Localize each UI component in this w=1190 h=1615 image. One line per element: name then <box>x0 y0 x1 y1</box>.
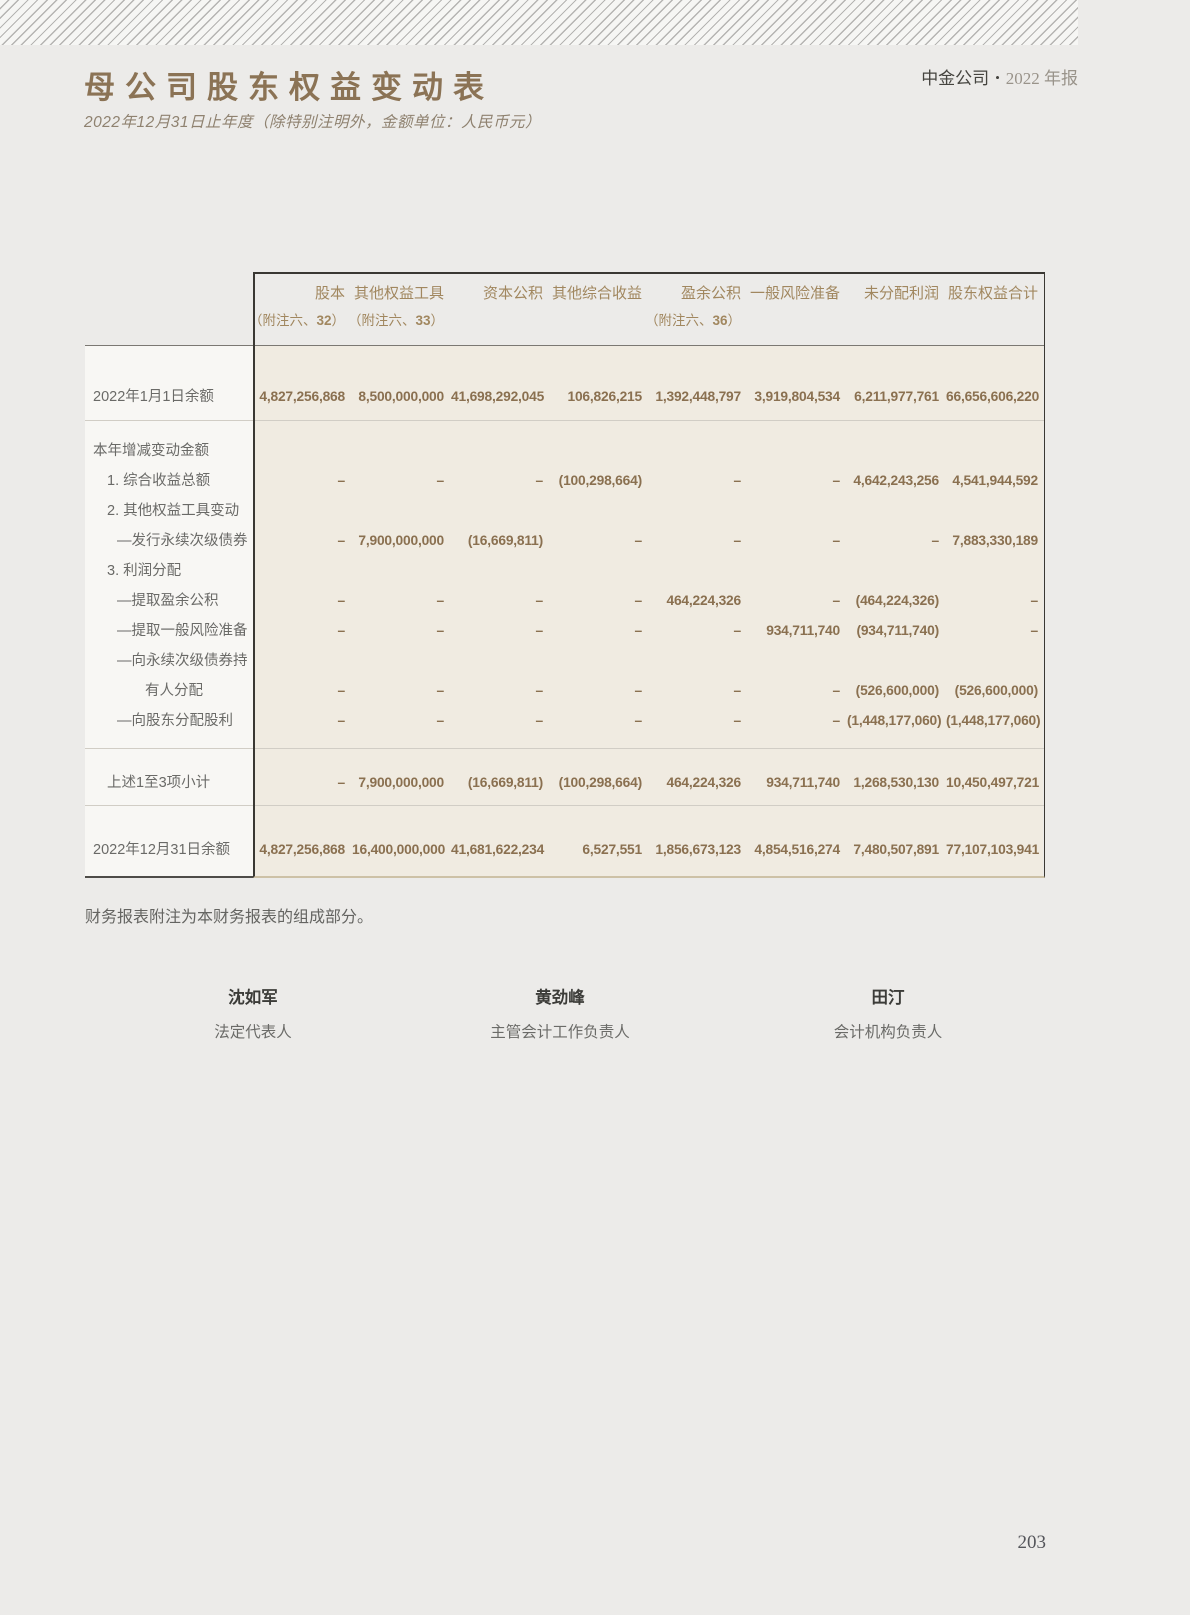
signatory-name: 田汀 <box>834 984 943 1008</box>
signatory-name: 沈如军 <box>214 984 292 1008</box>
column-header: 未分配利润 <box>847 285 946 345</box>
brand-name: 中金公司 <box>921 69 989 88</box>
cell: – <box>550 676 649 706</box>
cell: – <box>946 586 1045 616</box>
cell: 7,480,507,891 <box>847 835 946 865</box>
cell: – <box>451 586 550 616</box>
cell: 106,826,215 <box>550 382 649 412</box>
row-label: 上述1至3项小计 <box>85 768 253 798</box>
table-row: —提取一般风险准备 – – – – – 934,711,740 (934,711… <box>85 616 1045 646</box>
row-label: 2022年1月1日余额 <box>85 382 253 412</box>
cell: 464,224,326 <box>649 768 748 798</box>
cell: – <box>253 768 352 798</box>
report-year: 2022 年报 <box>1006 69 1078 88</box>
cell: 464,224,326 <box>649 586 748 616</box>
table-row: 本年增减变动金额 <box>85 436 1045 466</box>
column-header: 盈余公积 （附注六、36） <box>649 285 748 345</box>
financial-statement-note: 财务报表附注为本财务报表的组成部分。 <box>85 903 373 927</box>
cell: – <box>451 706 550 736</box>
cell: – <box>253 616 352 646</box>
cell: – <box>352 616 451 646</box>
cell: (16,669,811) <box>451 768 550 798</box>
cell: 4,541,944,592 <box>946 466 1045 496</box>
cell: – <box>253 526 352 556</box>
table-row-subtotal: 上述1至3项小计 – 7,900,000,000 (16,669,811) (1… <box>85 768 1045 798</box>
cell: 4,642,243,256 <box>847 466 946 496</box>
cell: 16,400,000,000 <box>352 835 451 865</box>
cell: 934,711,740 <box>748 768 847 798</box>
cell: – <box>649 706 748 736</box>
cell: 77,107,103,941 <box>946 835 1045 865</box>
cell: 1,856,673,123 <box>649 835 748 865</box>
cell: – <box>649 676 748 706</box>
table-row: 3. 利润分配 <box>85 556 1045 586</box>
cell: – <box>550 586 649 616</box>
cell: 8,500,000,000 <box>352 382 451 412</box>
table-row: 有人分配 – – – – – – (526,600,000) (526,600,… <box>85 676 1045 706</box>
cell: – <box>253 586 352 616</box>
cell: – <box>946 616 1045 646</box>
row-label: 有人分配 <box>85 676 253 706</box>
table-row: —提取盈余公积 – – – – 464,224,326 – (464,224,3… <box>85 586 1045 616</box>
table-row-opening-balance: 2022年1月1日余额 4,827,256,868 8,500,000,000 … <box>85 382 1045 412</box>
signatory-role: 会计机构负责人 <box>834 1020 943 1042</box>
page-title: 母公司股东权益变动表 <box>84 62 494 107</box>
bullet-separator: • <box>989 70 1006 85</box>
cell: – <box>451 676 550 706</box>
signature-accounting-head: 黄劲峰 主管会计工作负责人 <box>490 984 630 1042</box>
cell: 7,900,000,000 <box>352 768 451 798</box>
cell: (464,224,326) <box>847 586 946 616</box>
cell: 41,681,622,234 <box>451 835 550 865</box>
row-label: —向股东分配股利 <box>85 706 253 736</box>
report-header: 中金公司•2022 年报 <box>921 64 1078 89</box>
cell: – <box>748 526 847 556</box>
cell: – <box>451 466 550 496</box>
table-row: 2. 其他权益工具变动 <box>85 496 1045 526</box>
decorative-hatch-band <box>0 0 1078 45</box>
row-label: —向永续次级债券持 <box>85 646 253 676</box>
cell: – <box>253 676 352 706</box>
cell: (16,669,811) <box>451 526 550 556</box>
cell: 10,450,497,721 <box>946 768 1045 798</box>
cell: – <box>352 706 451 736</box>
row-label: 本年增减变动金额 <box>85 436 253 466</box>
table-row: 1. 综合收益总额 – – – (100,298,664) – – 4,642,… <box>85 466 1045 496</box>
cell: – <box>352 466 451 496</box>
column-header: 资本公积 <box>451 285 550 345</box>
cell: 4,827,256,868 <box>253 835 352 865</box>
cell: – <box>352 676 451 706</box>
cell: 6,211,977,761 <box>847 382 946 412</box>
cell: – <box>550 526 649 556</box>
cell: 934,711,740 <box>748 616 847 646</box>
cell: – <box>253 466 352 496</box>
row-label: —发行永续次级债券 <box>85 526 253 556</box>
statement-subtitle: 2022年12月31日止年度（除特别注明外，金额单位：人民币元） <box>84 110 541 132</box>
column-header: 其他权益工具 （附注六、33） <box>352 285 451 345</box>
row-label: 1. 综合收益总额 <box>85 466 253 496</box>
cell: – <box>550 706 649 736</box>
signatory-name: 黄劲峰 <box>490 984 630 1008</box>
cell: (100,298,664) <box>550 466 649 496</box>
table-row: —发行永续次级债券 – 7,900,000,000 (16,669,811) –… <box>85 526 1045 556</box>
cell: 6,527,551 <box>550 835 649 865</box>
cell: 1,392,448,797 <box>649 382 748 412</box>
cell: – <box>748 706 847 736</box>
cell: (1,448,177,060) <box>946 706 1045 736</box>
cell: – <box>649 616 748 646</box>
cell: 41,698,292,045 <box>451 382 550 412</box>
row-label: 2022年12月31日余额 <box>85 835 253 865</box>
cell: 66,656,606,220 <box>946 382 1045 412</box>
page-number: 203 <box>1018 1532 1047 1554</box>
signature-legal-representative: 沈如军 法定代表人 <box>214 984 292 1042</box>
cell: – <box>550 616 649 646</box>
row-label: —提取盈余公积 <box>85 586 253 616</box>
table-row: —向股东分配股利 – – – – – – (1,448,177,060) (1,… <box>85 706 1045 736</box>
cell: – <box>649 466 748 496</box>
cell: – <box>352 586 451 616</box>
cell: – <box>253 706 352 736</box>
cell: – <box>748 586 847 616</box>
signatory-role: 法定代表人 <box>214 1020 292 1042</box>
signature-accounting-department-head: 田汀 会计机构负责人 <box>834 984 943 1042</box>
column-header: 其他综合收益 <box>550 285 649 345</box>
cell: 4,854,516,274 <box>748 835 847 865</box>
cell: – <box>847 526 946 556</box>
cell: 7,900,000,000 <box>352 526 451 556</box>
cell: 4,827,256,868 <box>253 382 352 412</box>
cell: – <box>748 676 847 706</box>
cell: (526,600,000) <box>847 676 946 706</box>
cell: – <box>451 616 550 646</box>
table-row: —向永续次级债券持 <box>85 646 1045 676</box>
column-header: 股东权益合计 <box>946 285 1045 345</box>
cell: (934,711,740) <box>847 616 946 646</box>
table-row-closing-balance: 2022年12月31日余额 4,827,256,868 16,400,000,0… <box>85 835 1045 865</box>
row-label: 3. 利润分配 <box>85 556 253 586</box>
cell: – <box>649 526 748 556</box>
cell: (1,448,177,060) <box>847 706 946 736</box>
cell: (100,298,664) <box>550 768 649 798</box>
row-label: —提取一般风险准备 <box>85 616 253 646</box>
cell: – <box>748 466 847 496</box>
cell: 3,919,804,534 <box>748 382 847 412</box>
column-header: 一般风险准备 <box>748 285 847 345</box>
cell: 1,268,530,130 <box>847 768 946 798</box>
signatory-role: 主管会计工作负责人 <box>490 1020 630 1042</box>
equity-change-table: 股本 （附注六、32） 其他权益工具 （附注六、33） 资本公积 其他综合收益 … <box>85 272 1045 878</box>
cell: (526,600,000) <box>946 676 1045 706</box>
row-label: 2. 其他权益工具变动 <box>85 496 253 526</box>
column-header: 股本 （附注六、32） <box>253 285 352 345</box>
cell: 7,883,330,189 <box>946 526 1045 556</box>
table-header-row: 股本 （附注六、32） 其他权益工具 （附注六、33） 资本公积 其他综合收益 … <box>85 272 1045 345</box>
